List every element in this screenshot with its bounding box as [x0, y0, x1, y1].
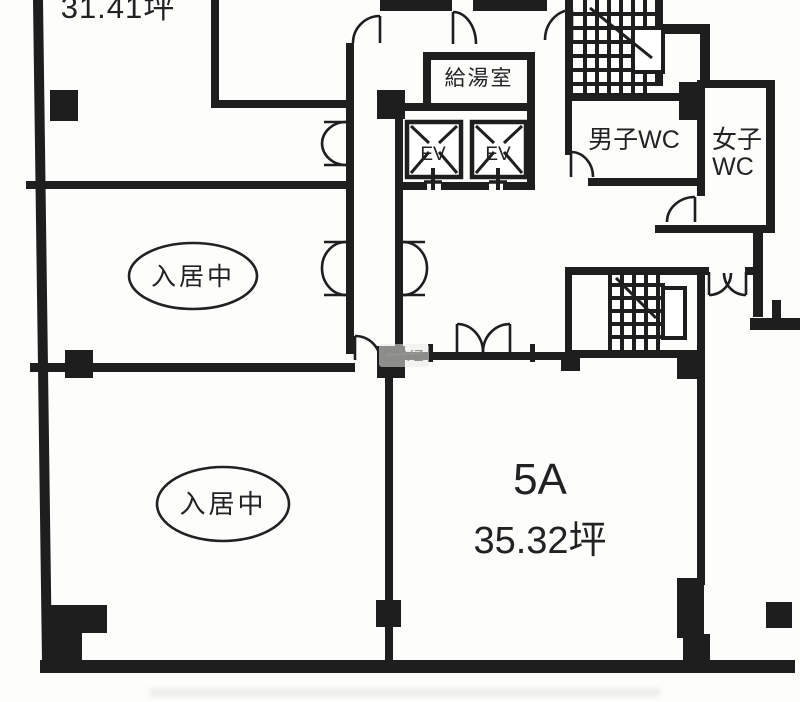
womens-wc-top-wall — [697, 80, 775, 88]
double-door-unit5a — [457, 324, 510, 352]
corridor-right-wall — [395, 119, 403, 354]
elevator-2: EV — [472, 122, 526, 190]
double-door-occupied-room-1 — [322, 242, 346, 295]
kitchenette-left-wall — [423, 52, 431, 111]
room-label-kitchenette: 給湯室 — [445, 67, 514, 90]
top-right-step-v — [700, 28, 710, 84]
mid-stairs-top-wall — [565, 267, 709, 275]
unit5a-inner-right-wall — [697, 267, 705, 585]
watermark: ReYZ — [379, 344, 429, 367]
room1-bottom-jog-wall — [211, 100, 354, 108]
ev-bottom-wall-a — [403, 182, 427, 190]
staircase-top — [573, 0, 663, 93]
pillar — [679, 82, 701, 120]
area-label-top-left: 31.41坪 — [61, 0, 176, 25]
womens-wc-right-wall — [766, 80, 775, 233]
unit5a-area: 35.32坪 — [473, 520, 606, 562]
mid-stairs-top-wall-right — [745, 267, 763, 275]
stair-landing — [663, 288, 685, 338]
door-corridor-bottom — [355, 336, 380, 360]
staircase-middle — [610, 272, 685, 350]
outer-wall-left — [33, 0, 52, 662]
mens-wc-left-wall — [565, 93, 572, 155]
top-wall-b — [473, 0, 547, 11]
pillar — [766, 602, 792, 628]
pillar — [677, 578, 704, 638]
corridor-left-wall — [346, 43, 354, 354]
occupied-label-2: 入居中 — [179, 489, 266, 519]
kitchenette-top-wall — [423, 52, 535, 60]
top-wall-a — [380, 0, 452, 11]
door-womens-wc — [667, 197, 695, 222]
divider-wall-upper — [26, 181, 354, 189]
ev-bottom-wall-b — [441, 182, 489, 190]
occupied-badge-2: 入居中 — [157, 467, 289, 541]
occupied-badge-1: 入居中 — [129, 243, 257, 309]
right-edge-bar — [750, 318, 800, 330]
stair-landing — [633, 28, 663, 72]
double-door-upper-left-room — [322, 122, 346, 165]
watermark-text: ReYZ — [383, 348, 424, 365]
kitchenette-bottom-wall — [395, 103, 535, 111]
unit5a-right-wall-step — [683, 634, 710, 662]
double-door-mid-stairs — [709, 272, 746, 295]
room-label-mens-wc: 男子WC — [588, 126, 680, 154]
right-edge-nub — [772, 300, 781, 320]
mid-stairs-left-wall — [565, 267, 572, 353]
elevator-label: EV — [485, 144, 511, 165]
occupied-label-1: 入居中 — [151, 263, 235, 291]
room-label-womens-wc-line2: WC — [712, 153, 754, 181]
room-label-womens-wc-line1: 女子 — [712, 126, 762, 154]
room1-right-wall — [211, 0, 219, 106]
double-door-elevator-hall — [403, 242, 427, 295]
door-corridor-top — [353, 16, 380, 43]
elevator-label: EV — [420, 144, 446, 165]
ev-bottom-wall-c — [503, 182, 535, 190]
mens-wc-bottom-wall — [588, 178, 705, 186]
door-kitchenette — [453, 12, 476, 44]
pillar-corner-l — [42, 630, 82, 670]
outer-wall-bottom — [40, 660, 795, 673]
elevator-1: EV — [407, 122, 461, 190]
mens-wc-top-wall — [565, 93, 685, 101]
floorplan-svg: EV EV — [0, 0, 800, 702]
floorplan-image: EV EV — [0, 0, 800, 702]
pillar — [561, 352, 580, 371]
pillar — [65, 350, 93, 378]
hall-wall-tick-b — [530, 344, 535, 362]
pillar — [377, 90, 405, 119]
pillar — [50, 90, 78, 121]
womens-wc-bottom-wall — [655, 225, 775, 233]
cut-off-caption-smudge — [150, 688, 660, 697]
pillar-corner-l — [42, 605, 107, 633]
door-mens-wc — [571, 152, 593, 177]
unit5a-name: 5A — [513, 455, 567, 504]
pillar — [677, 352, 704, 379]
pillar — [376, 600, 401, 627]
